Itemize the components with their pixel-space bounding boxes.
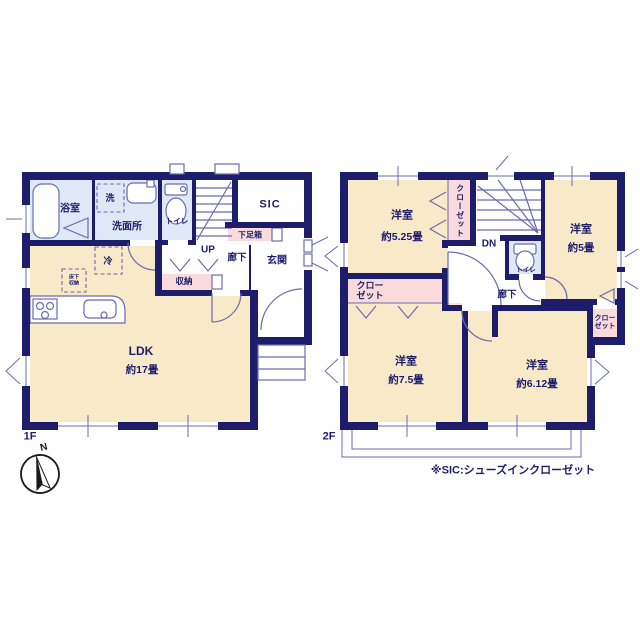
- label-floor-storage: 床下 収納: [69, 275, 79, 287]
- room-size-bedroom1: 約5.25畳: [381, 231, 422, 243]
- label-closet-vertical: クローゼット: [455, 184, 464, 238]
- bedroom2-area: [545, 180, 617, 299]
- toilet-window-1f: [170, 164, 184, 174]
- label-shoebox: 下足箱: [238, 230, 262, 239]
- label-closet-right: クロー ゼット: [595, 315, 616, 331]
- bedroom1-area: [348, 180, 448, 273]
- label-floor-storage-line2: 収納: [69, 281, 79, 287]
- label-stairs-down: DN: [482, 238, 496, 250]
- room-size-bedroom3: 約7.5畳: [388, 374, 424, 386]
- toilet-button-1f: [181, 187, 186, 192]
- room-label-ldk: LDK: [129, 345, 154, 359]
- room-label-hallway-1f: 廊下: [227, 254, 246, 265]
- bathtub: [33, 184, 59, 238]
- room-size-bedroom2: 約5畳: [568, 242, 595, 254]
- floor2-plan: [325, 156, 638, 457]
- balcony: [342, 430, 581, 457]
- label-closet-left: クロー ゼット: [356, 281, 383, 302]
- label-closet-left-line2: ゼット: [356, 291, 383, 301]
- room-label-toilet-2f: トイレ: [516, 266, 536, 273]
- room-label-hallway-2f: 廊下: [497, 291, 516, 302]
- label-fridge: 冷: [103, 256, 112, 266]
- porch-steps: [258, 345, 305, 380]
- room-label-entrance: 玄関: [267, 255, 287, 267]
- floor1-label: 1F: [24, 431, 37, 444]
- label-stairs-up: UP: [201, 244, 215, 256]
- floor2-label: 2F: [323, 431, 336, 444]
- room-label-toilet-1f: トイレ: [166, 218, 189, 227]
- label-storage: 収納: [175, 277, 192, 287]
- vanity-tap: [147, 180, 154, 187]
- label-washer: 洗: [105, 193, 114, 203]
- room-size-bedroom4: 約6.12畳: [516, 378, 557, 390]
- room-label-washroom: 洗面所: [112, 221, 142, 233]
- room-size-ldk: 約17畳: [126, 364, 159, 376]
- stair-window-1f: [215, 164, 239, 174]
- label-closet-right-line2: ゼット: [595, 323, 616, 331]
- room-label-bedroom2: 洋室: [570, 224, 592, 237]
- sic-footnote: ※SIC:シューズインクローゼット: [431, 465, 595, 478]
- front-door-panel: [304, 240, 312, 252]
- label-closet-right-line1: クロー: [595, 315, 616, 323]
- compass: [17, 451, 62, 496]
- floorplan-canvas: [0, 0, 640, 640]
- room-label-bedroom4: 洋室: [526, 360, 548, 373]
- room-label-sic: SIC: [259, 199, 280, 212]
- room-label-bathroom: 浴室: [60, 203, 80, 215]
- floor1-shoebox-side: [272, 228, 282, 241]
- front-door-swing-marks: [312, 237, 328, 271]
- room-label-bedroom3: 洋室: [395, 356, 417, 369]
- room-label-bedroom1: 洋室: [391, 210, 413, 223]
- front-door-panel: [304, 254, 312, 266]
- floorplan-page: 浴室 洗 洗面所 トイレ SIC 下足箱 UP 廊下 玄関 収納 冷 床下 収納…: [0, 0, 640, 640]
- floor1-storage-side: [212, 275, 222, 289]
- label-closet-left-line1: クロー: [356, 281, 383, 291]
